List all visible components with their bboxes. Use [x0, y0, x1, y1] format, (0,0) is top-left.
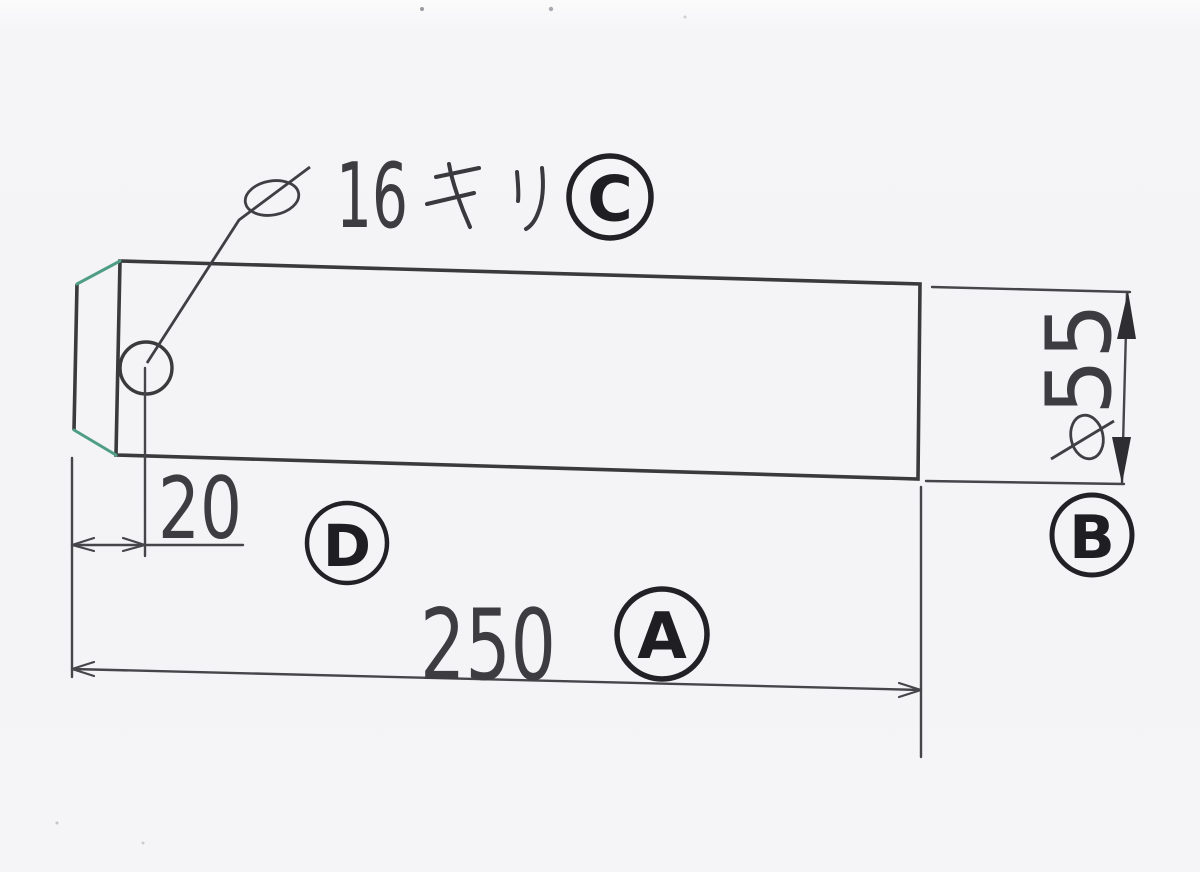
scanned-drawing-page: 16 C 20 D 250 A [0, 0, 1200, 872]
label-letter-d: D [323, 512, 371, 580]
arrowhead-down-icon [1112, 437, 1131, 484]
part-outline [74, 261, 920, 479]
chamfer-edge-top [77, 261, 120, 284]
label-letter-a: A [637, 600, 687, 674]
end-cap-edge [74, 284, 77, 430]
bar-body-outline [116, 261, 920, 479]
technical-drawing-canvas: 16 C 20 D 250 A [0, 0, 1200, 872]
extension-line-top [932, 287, 1130, 292]
katakana-ri-glyph [517, 168, 543, 229]
hole-note-value: 16 [336, 144, 408, 249]
extension-line-bottom [926, 481, 1124, 484]
scan-specks [56, 7, 687, 845]
bar-diameter-dimension: 55 B [926, 287, 1136, 575]
label-letter-b: B [1069, 503, 1115, 573]
katakana-ki-glyph [427, 164, 479, 227]
dimension-value-250: 250 [420, 589, 556, 703]
hole-offset-dimension: 20 D [72, 368, 387, 677]
hole-note: 16 C [147, 144, 651, 363]
dimension-value-20: 20 [158, 459, 242, 559]
dimension-value-55: 55 [1027, 303, 1132, 415]
chamfer-edge-bottom [74, 430, 116, 455]
phi-icon [242, 177, 301, 220]
label-letter-c: C [587, 163, 633, 236]
